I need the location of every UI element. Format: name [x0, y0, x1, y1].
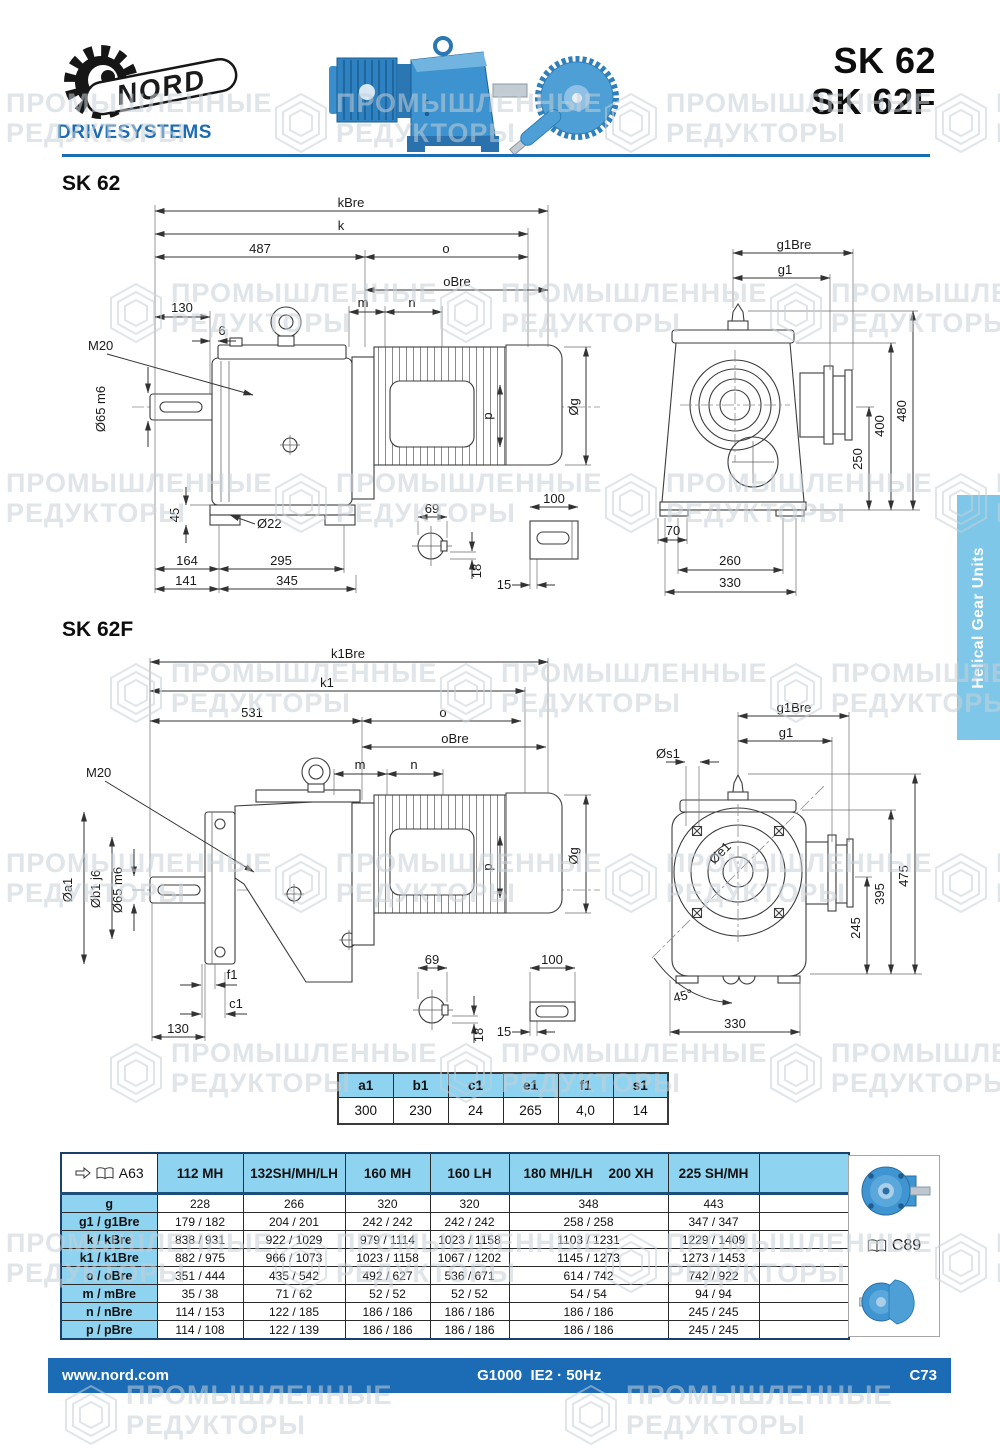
dim-o22: Ø22	[257, 516, 282, 531]
cell: 4,0	[558, 1098, 613, 1125]
dim-g1: g1	[779, 725, 793, 740]
brand-subtitle: DRIVESYSTEMS	[57, 122, 212, 144]
hexagon-watermark-icon	[0, 470, 2, 538]
cell-empty	[759, 1321, 849, 1340]
dim-g1: g1	[778, 262, 792, 277]
dim-100: 100	[543, 491, 565, 506]
dim-487: 487	[249, 241, 271, 256]
cell: 435 / 542	[243, 1267, 345, 1285]
cell: 24	[448, 1098, 503, 1125]
dim-g1bre: g1Bre	[777, 700, 812, 715]
row-label: p / pBre	[61, 1321, 157, 1340]
cell: 186 / 186	[509, 1303, 668, 1321]
cell: 979 / 1114	[345, 1231, 430, 1249]
section-title-sk62: SK 62	[62, 172, 120, 196]
table-row: g 228 266 320 320 348 443	[61, 1194, 849, 1213]
cell-empty	[759, 1285, 849, 1303]
catalog-book-icon	[867, 1239, 887, 1253]
col-header: s1	[613, 1073, 668, 1098]
col-header: 112 MH	[157, 1153, 243, 1194]
cell: 204 / 201	[243, 1213, 345, 1231]
dim-475: 475	[896, 865, 911, 887]
cell: 35 / 38	[157, 1285, 243, 1303]
dim-70: 70	[666, 523, 680, 538]
cell: 186 / 186	[509, 1321, 668, 1340]
c89-reference-panel: C89	[848, 1155, 940, 1337]
dim-og: Øg	[566, 847, 581, 864]
dim-m20: M20	[88, 338, 113, 353]
cell: 242 / 242	[345, 1213, 430, 1231]
dim-330: 330	[724, 1016, 746, 1031]
section-title-sk62f: SK 62F	[62, 618, 133, 642]
dim-f1: f1	[227, 967, 238, 982]
watermark: ПРОМЫШЛЕННЫЕ РЕДУКТОРЫ	[765, 1038, 1000, 1108]
dim-o: o	[442, 241, 449, 256]
cell-empty	[759, 1303, 849, 1321]
row-label: o / oBre	[61, 1267, 157, 1285]
hexagon-watermark-icon	[0, 1230, 2, 1298]
cell: 966 / 1073	[243, 1249, 345, 1267]
cell: 1229 / 1409	[668, 1231, 759, 1249]
dim-o: o	[439, 705, 446, 720]
cell: 742 / 922	[668, 1267, 759, 1285]
dim-69: 69	[425, 952, 439, 967]
hexagon-watermark-icon	[105, 1040, 167, 1108]
dim-p: p	[480, 863, 495, 870]
dim-s1: Øs1	[656, 746, 680, 761]
cell: 1103 / 1231	[509, 1231, 668, 1249]
cell: 122 / 185	[243, 1303, 345, 1321]
cell: 186 / 186	[345, 1303, 430, 1321]
dim-m: m	[358, 295, 369, 310]
col-header: b1	[393, 1073, 448, 1098]
col-header: a1	[338, 1073, 393, 1098]
dim-130: 130	[167, 1021, 189, 1036]
cell-empty	[759, 1231, 849, 1249]
cell: 186 / 186	[430, 1321, 509, 1340]
cell: 114 / 153	[157, 1303, 243, 1321]
dim-6: 6	[218, 323, 225, 338]
dim-k1: k1	[320, 675, 334, 690]
sk62-end-drawing: g1Bre g1 250 400 480 70 260 330	[628, 230, 956, 600]
cell: 536 / 671	[430, 1267, 509, 1285]
cell: 94 / 94	[668, 1285, 759, 1303]
cell: 1023 / 1158	[430, 1231, 509, 1249]
dim-k1bre: k1Bre	[331, 646, 365, 661]
sk62f-end-drawing: g1Bre g1 Øs1 Øe1 245 395 475 45° 330	[620, 700, 1000, 1045]
table-row: k / kBre 838 / 931 922 / 1029 979 / 1114…	[61, 1231, 849, 1249]
header-divider	[62, 154, 930, 157]
dim-245: 245	[848, 917, 863, 939]
dim-164: 164	[176, 553, 198, 568]
cell: 348	[509, 1194, 668, 1213]
dim-kbre: kBre	[338, 195, 365, 210]
cell: 265	[503, 1098, 558, 1125]
cell: 245 / 245	[668, 1321, 759, 1340]
table-row: g1 / g1Bre 179 / 182 204 / 201 242 / 242…	[61, 1213, 849, 1231]
cell: 14	[613, 1098, 668, 1125]
cell: 1067 / 1202	[430, 1249, 509, 1267]
col-header: f1	[558, 1073, 613, 1098]
dim-n: n	[408, 295, 415, 310]
catalog-ref-cell: A63	[61, 1153, 157, 1194]
table-row: p / pBre 114 / 108 122 / 139 186 / 186 1…	[61, 1321, 849, 1340]
dim-m20: M20	[86, 765, 111, 780]
dim-130: 130	[171, 300, 193, 315]
cell: 179 / 182	[157, 1213, 243, 1231]
table-row: m / mBre 35 / 38 71 / 62 52 / 52 52 / 52…	[61, 1285, 849, 1303]
dim-400: 400	[872, 415, 887, 437]
dim-c1: c1	[229, 996, 243, 1011]
sk62-side-drawing: kBre k 487 o oBre 130 6 m n M20 Ø65 m6 p…	[60, 195, 620, 600]
cell: 300	[338, 1098, 393, 1125]
hexagon-watermark-icon	[0, 850, 2, 918]
cell-empty	[759, 1213, 849, 1231]
cell: 1023 / 1158	[345, 1249, 430, 1267]
watermark: ПРОМЫШЛЕННЫЕ РЕДУКТОРЫ	[930, 1228, 1000, 1298]
col-header: c1	[448, 1073, 503, 1098]
cell: 52 / 52	[430, 1285, 509, 1303]
dim-g1bre: g1Bre	[777, 237, 812, 252]
dim-m: m	[355, 757, 366, 772]
table-row: n / nBre 114 / 153 122 / 185 186 / 186 1…	[61, 1303, 849, 1321]
dim-shaft: Ø65 m6	[93, 386, 108, 432]
sk62f-side-drawing: k1Bre k1 531 o oBre m n M20 Øa1 Øb1 j6 Ø…	[60, 640, 620, 1050]
dim-18: 18	[471, 1028, 486, 1042]
dim-531: 531	[241, 705, 263, 720]
col-header: 132SH/MH/LH	[243, 1153, 345, 1194]
dim-69: 69	[425, 501, 439, 516]
product-photo	[325, 20, 635, 160]
cell: 186 / 186	[345, 1321, 430, 1340]
arrow-right-icon	[75, 1167, 91, 1179]
cell: 186 / 186	[430, 1303, 509, 1321]
dim-45deg: 45°	[672, 986, 695, 1005]
dim-100: 100	[541, 952, 563, 967]
table-row: o / oBre 351 / 444 435 / 542 492 / 627 5…	[61, 1267, 849, 1285]
page-title: SK 62 SK 62F	[640, 40, 936, 122]
footer-catalog-info: G1000 IE2 · 50Hz	[477, 1367, 601, 1384]
hexagon-watermark-icon	[270, 90, 332, 158]
dim-shaft: Ø65 m6	[110, 867, 125, 913]
cell: 347 / 347	[668, 1213, 759, 1231]
cell-empty	[759, 1267, 849, 1285]
dim-a1: Øa1	[60, 878, 75, 903]
footer-website-link[interactable]: www.nord.com	[62, 1367, 169, 1384]
dim-345: 345	[276, 573, 298, 588]
row-label: g	[61, 1194, 157, 1213]
cell: 320	[430, 1194, 509, 1213]
row-label: m / mBre	[61, 1285, 157, 1303]
row-label: k / kBre	[61, 1231, 157, 1249]
c89-ref-label: C89	[892, 1237, 921, 1255]
cell: 114 / 108	[157, 1321, 243, 1340]
cell: 230	[393, 1098, 448, 1125]
nord-logo: NORD	[55, 34, 275, 126]
cell: 1273 / 1453	[668, 1249, 759, 1267]
dim-b1: Øb1 j6	[88, 870, 103, 908]
dim-480: 480	[894, 400, 909, 422]
row-label: g1 / g1Bre	[61, 1213, 157, 1231]
dim-og: Øg	[566, 398, 581, 415]
cell: 71 / 62	[243, 1285, 345, 1303]
dim-395: 395	[872, 883, 887, 905]
table-row: k1 / k1Bre 882 / 975 966 / 1073 1023 / 1…	[61, 1249, 849, 1267]
dim-15: 15	[497, 1024, 511, 1039]
dim-141: 141	[175, 573, 197, 588]
cell: 242 / 242	[430, 1213, 509, 1231]
cell: 614 / 742	[509, 1267, 668, 1285]
cell: 320	[345, 1194, 430, 1213]
cell: 922 / 1029	[243, 1231, 345, 1249]
cell: 266	[243, 1194, 345, 1213]
col-header-empty	[759, 1153, 849, 1194]
col-header: 160 MH	[345, 1153, 430, 1194]
cell: 258 / 258	[509, 1213, 668, 1231]
cell: 52 / 52	[345, 1285, 430, 1303]
row-label: n / nBre	[61, 1303, 157, 1321]
footer-page-number: C73	[909, 1367, 937, 1384]
watermark: ПРОМЫШЛЕННЫЕ РЕДУКТОРЫ	[930, 88, 1000, 158]
col-header: 225 SH/MH	[668, 1153, 759, 1194]
col-header: e1	[503, 1073, 558, 1098]
dim-45: 45	[167, 508, 182, 522]
dim-295: 295	[270, 553, 292, 568]
cell: 838 / 931	[157, 1231, 243, 1249]
cell: 1145 / 1273	[509, 1249, 668, 1267]
dim-p: p	[480, 412, 495, 419]
cell: 245 / 245	[668, 1303, 759, 1321]
catalog-book-icon	[96, 1167, 114, 1180]
dim-330: 330	[719, 575, 741, 590]
dim-obre: oBre	[441, 731, 468, 746]
cell: 351 / 444	[157, 1267, 243, 1285]
col-header-merged: 180 MH/LH 200 XH	[509, 1153, 668, 1194]
dim-18: 18	[469, 564, 484, 578]
motor-dimensions-table: A63 112 MH 132SH/MH/LH 160 MH 160 LH 180…	[60, 1152, 850, 1340]
cell-empty	[759, 1194, 849, 1213]
cell: 122 / 139	[243, 1321, 345, 1340]
cell: 882 / 975	[157, 1249, 243, 1267]
dim-260: 260	[719, 553, 741, 568]
dim-n: n	[410, 757, 417, 772]
hexagon-watermark-icon	[930, 90, 992, 158]
hexagon-watermark-icon	[765, 1040, 827, 1108]
cell-empty	[759, 1249, 849, 1267]
cell: 443	[668, 1194, 759, 1213]
cell: 228	[157, 1194, 243, 1213]
col-header: 160 LH	[430, 1153, 509, 1194]
dim-k: k	[338, 218, 345, 233]
flange-dimensions-table: a1 b1 c1 e1 f1 s1 300 230 24 265 4,0 14	[337, 1072, 669, 1125]
cell: 54 / 54	[509, 1285, 668, 1303]
row-label: k1 / k1Bre	[61, 1249, 157, 1267]
dim-obre: oBre	[443, 274, 470, 289]
dim-250: 250	[850, 448, 865, 470]
cell: 492 / 627	[345, 1267, 430, 1285]
catalog-ref-label: A63	[119, 1165, 144, 1181]
hexagon-watermark-icon	[0, 90, 2, 158]
chapter-tab-helical-gear-units: Helical Gear Units	[957, 495, 1000, 740]
flanged-gear-unit-photo	[859, 1272, 929, 1330]
footer: www.nord.com G1000 IE2 · 50Hz C73	[48, 1358, 951, 1393]
flange-unit-photo	[854, 1162, 934, 1220]
dim-15: 15	[497, 577, 511, 592]
